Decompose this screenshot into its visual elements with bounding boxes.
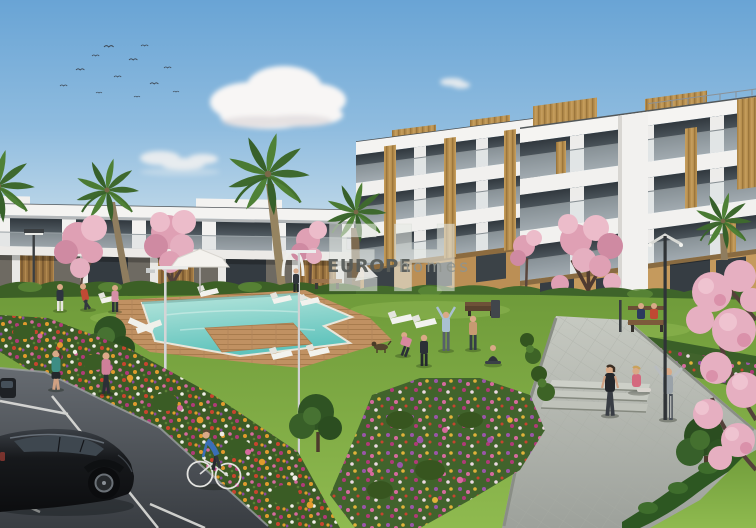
seated-person	[650, 303, 658, 319]
render-scene: EH EUROPE homes	[0, 0, 756, 528]
seated-person	[637, 303, 645, 319]
trash-bin	[491, 300, 500, 318]
watermark-brand-secondary: homes	[399, 257, 471, 277]
watermark: EH EUROPE homes	[321, 206, 471, 313]
parked-car-partial	[0, 378, 16, 398]
listing-photo: EH EUROPE homes	[0, 0, 756, 528]
bollard	[619, 300, 622, 332]
